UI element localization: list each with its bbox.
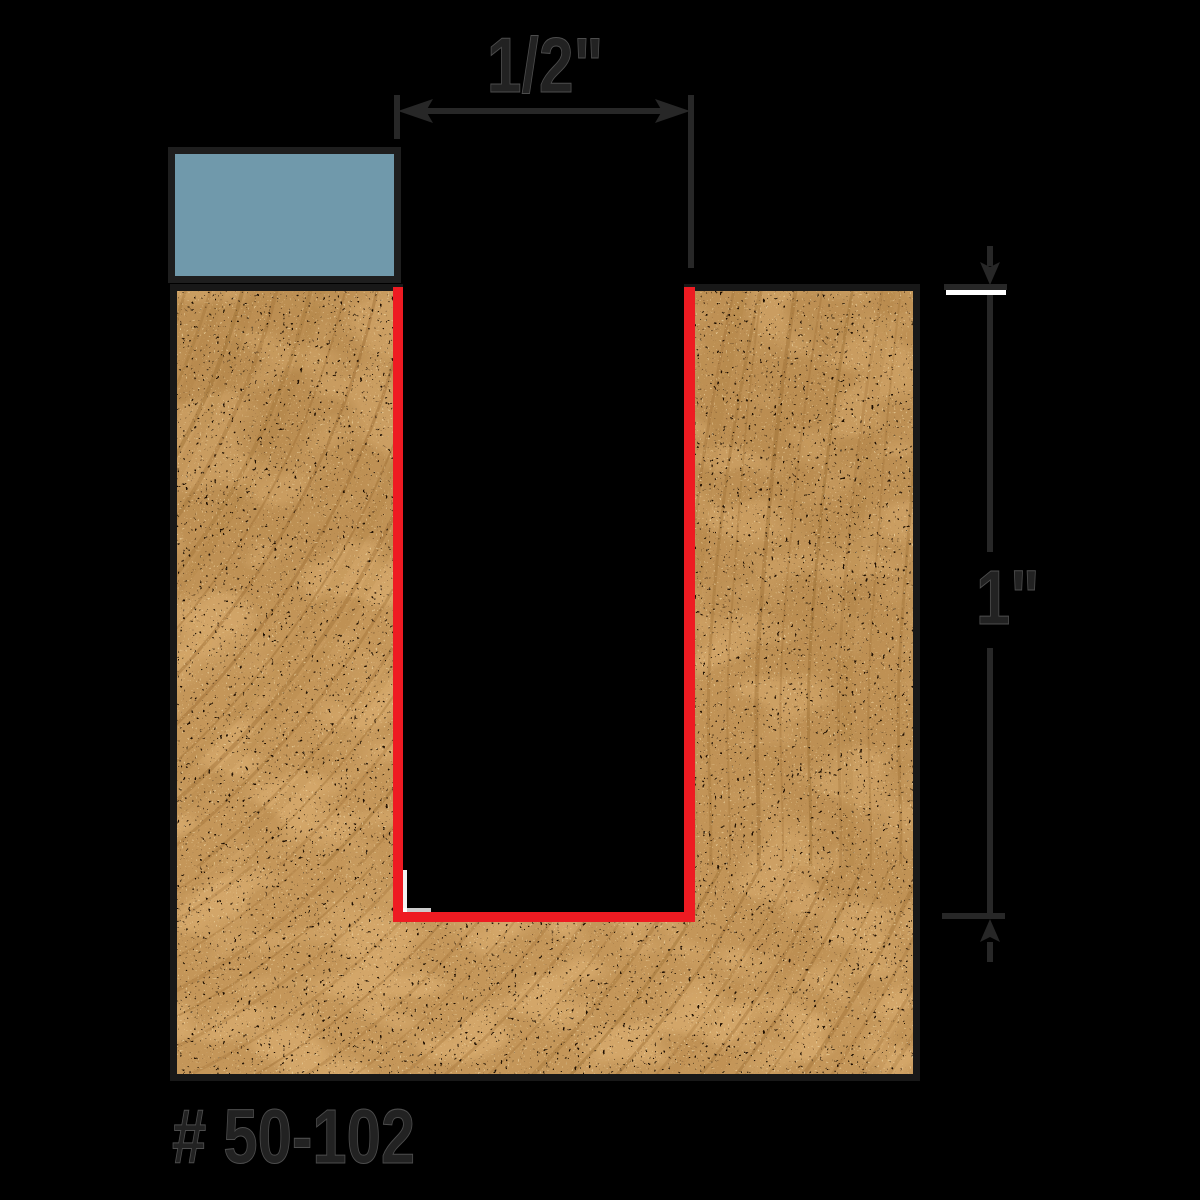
svg-text:1": 1": [976, 554, 1039, 640]
svg-text:1/2": 1/2": [487, 21, 603, 108]
svg-text:# 50-102: # 50-102: [172, 1093, 415, 1179]
